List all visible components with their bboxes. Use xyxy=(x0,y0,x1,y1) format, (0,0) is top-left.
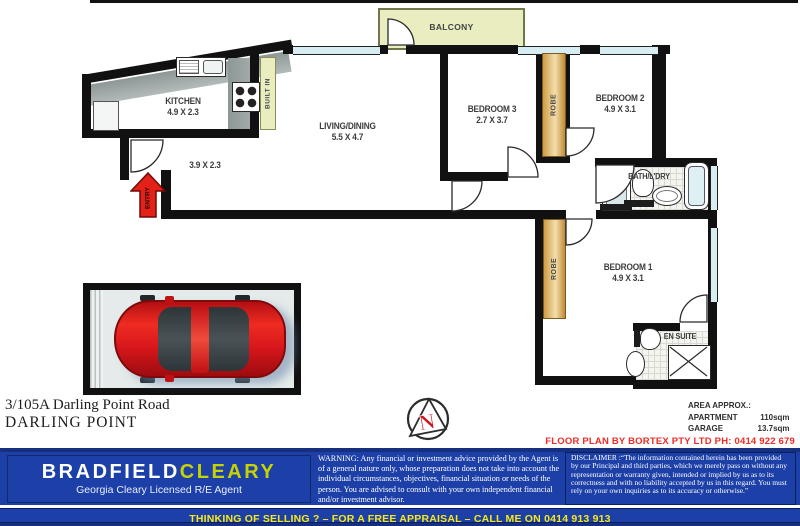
door-arc xyxy=(566,219,592,245)
window xyxy=(293,46,380,55)
garage-door xyxy=(90,290,103,388)
door-arc xyxy=(131,140,163,172)
bath-label: BATH/L'DRY xyxy=(615,171,683,182)
room-name: BEDROOM 1 xyxy=(587,262,670,273)
robe-1: ROBE xyxy=(542,53,566,157)
basin-icon xyxy=(626,351,645,377)
balcony-label: BALCONY xyxy=(380,22,523,32)
wall-segment xyxy=(120,133,129,180)
bedroom2-label: BEDROOM 2 4.9 X 3.1 xyxy=(579,93,662,115)
area-row: GARAGE 13.7sqm xyxy=(688,423,790,435)
wall-segment xyxy=(633,380,717,389)
room-name: BEDROOM 3 xyxy=(452,104,531,115)
car-graphic xyxy=(112,296,288,382)
door-arc xyxy=(452,181,482,211)
brand-wordmark: BRADFIELDCLEARY xyxy=(8,461,310,483)
cta-bar: THINKING OF SELLING ? – FOR A FREE APPRA… xyxy=(0,508,800,523)
wall-segment xyxy=(535,210,543,385)
wall-segment xyxy=(535,376,641,385)
bathtub-icon xyxy=(684,162,709,210)
room-dims: 2.7 X 3.7 xyxy=(452,115,531,126)
basin-icon xyxy=(652,186,682,206)
footer: BRADFIELDCLEARY Georgia Cleary Licensed … xyxy=(0,452,800,505)
compass-north-icon: N xyxy=(405,396,451,442)
sink-icon xyxy=(176,57,226,77)
property-address: 3/105A Darling Point Road DARLING POINT xyxy=(5,397,170,432)
room-name: BEDROOM 2 xyxy=(579,93,662,104)
living-dining-label: LIVING/DINING 5.5 X 4.7 xyxy=(304,121,391,143)
room-name: KITCHEN xyxy=(142,96,225,107)
room-dims: 4.9 X 3.1 xyxy=(587,273,670,284)
kitchen-label: KITCHEN 4.9 X 2.3 xyxy=(142,96,225,118)
sink-bowl xyxy=(203,60,223,74)
room-dims: 4.9 X 2.3 xyxy=(142,107,225,118)
entry-label-text: ENTRY xyxy=(145,187,152,209)
window xyxy=(710,228,718,302)
agency-logo: BRADFIELDCLEARY Georgia Cleary Licensed … xyxy=(7,455,311,503)
wall-segment xyxy=(543,210,566,219)
bedroom3-label: BEDROOM 3 2.7 X 3.7 xyxy=(452,104,531,126)
room-name: EN SUITE xyxy=(652,331,707,342)
compass-svg: N xyxy=(405,396,451,442)
address-line2: DARLING POINT xyxy=(5,414,170,432)
balcony-room: BALCONY xyxy=(378,8,525,50)
window xyxy=(710,166,718,210)
ensuite-label: EN SUITE xyxy=(652,331,707,342)
robe-2: ROBE xyxy=(543,219,566,319)
wall-segment xyxy=(406,45,518,54)
wall-segment xyxy=(283,45,293,54)
wall-segment xyxy=(161,210,543,219)
area-row-name: GARAGE xyxy=(688,423,723,435)
area-row-value: 13.7sqm xyxy=(758,423,790,435)
wall-segment xyxy=(440,172,508,181)
robe-label: ROBE xyxy=(551,258,558,280)
door-arc xyxy=(566,128,594,156)
garage xyxy=(83,283,301,395)
car-mirror xyxy=(165,296,174,303)
room-name: LIVING/DINING xyxy=(304,121,391,132)
wall-segment xyxy=(380,45,388,54)
sink-drainer xyxy=(179,60,199,74)
warning-text: WARNING: Any financial or investment adv… xyxy=(318,454,562,505)
room-name: BATH/L'DRY xyxy=(615,171,683,182)
room-dims: 4.9 X 3.1 xyxy=(579,104,662,115)
floorplan-flyer: BALCONY BUILT IN ROBE xyxy=(0,0,800,526)
wall-segment xyxy=(596,210,716,219)
brand-part1: BRADFIELD xyxy=(42,461,180,483)
room-dims: 3.9 X 2.3 xyxy=(171,160,239,171)
entry-label: ENTRY xyxy=(138,180,158,216)
wall-segment xyxy=(82,74,91,138)
area-approx-title: AREA APPROX.: xyxy=(688,400,790,412)
area-row: APARTMENT 110sqm xyxy=(688,412,790,424)
shower-icon xyxy=(668,345,711,380)
built-in-label: BUILT IN xyxy=(265,78,272,109)
robe-label: ROBE xyxy=(551,94,558,116)
brand-tagline: Georgia Cleary Licensed R/E Agent xyxy=(8,484,310,496)
disclaimer-box: DISCLAIMER :“The information contained h… xyxy=(565,452,796,505)
window xyxy=(600,46,658,55)
hall-dims-label: 3.9 X 2.3 xyxy=(171,160,239,171)
area-row-value: 110sqm xyxy=(760,412,789,424)
built-in-cupboard: BUILT IN xyxy=(260,57,276,130)
fridge-icon xyxy=(93,101,119,131)
fixture-base xyxy=(624,200,654,207)
wall-segment xyxy=(580,45,600,54)
wall-segment xyxy=(440,52,448,181)
bedroom1-label: BEDROOM 1 4.9 X 3.1 xyxy=(587,262,670,284)
door-arc xyxy=(508,147,538,177)
area-row-name: APARTMENT xyxy=(688,412,738,424)
floorplan-credit: FLOOR PLAN BY BORTEX PTY LTD PH: 0414 92… xyxy=(545,436,795,447)
disclaimer-text: DISCLAIMER :“The information contained h… xyxy=(566,453,795,496)
room-dims: 5.5 X 4.7 xyxy=(304,132,391,143)
area-approx-block: AREA APPROX.: APARTMENT 110sqm GARAGE 13… xyxy=(688,400,790,435)
car-roof-band xyxy=(191,305,209,372)
brand-part2: CLEARY xyxy=(180,461,276,483)
top-border-line xyxy=(90,0,798,3)
address-line1: 3/105A Darling Point Road xyxy=(5,397,170,414)
stove-icon xyxy=(232,82,260,112)
door-arc xyxy=(680,295,707,322)
car-mirror xyxy=(165,375,174,382)
